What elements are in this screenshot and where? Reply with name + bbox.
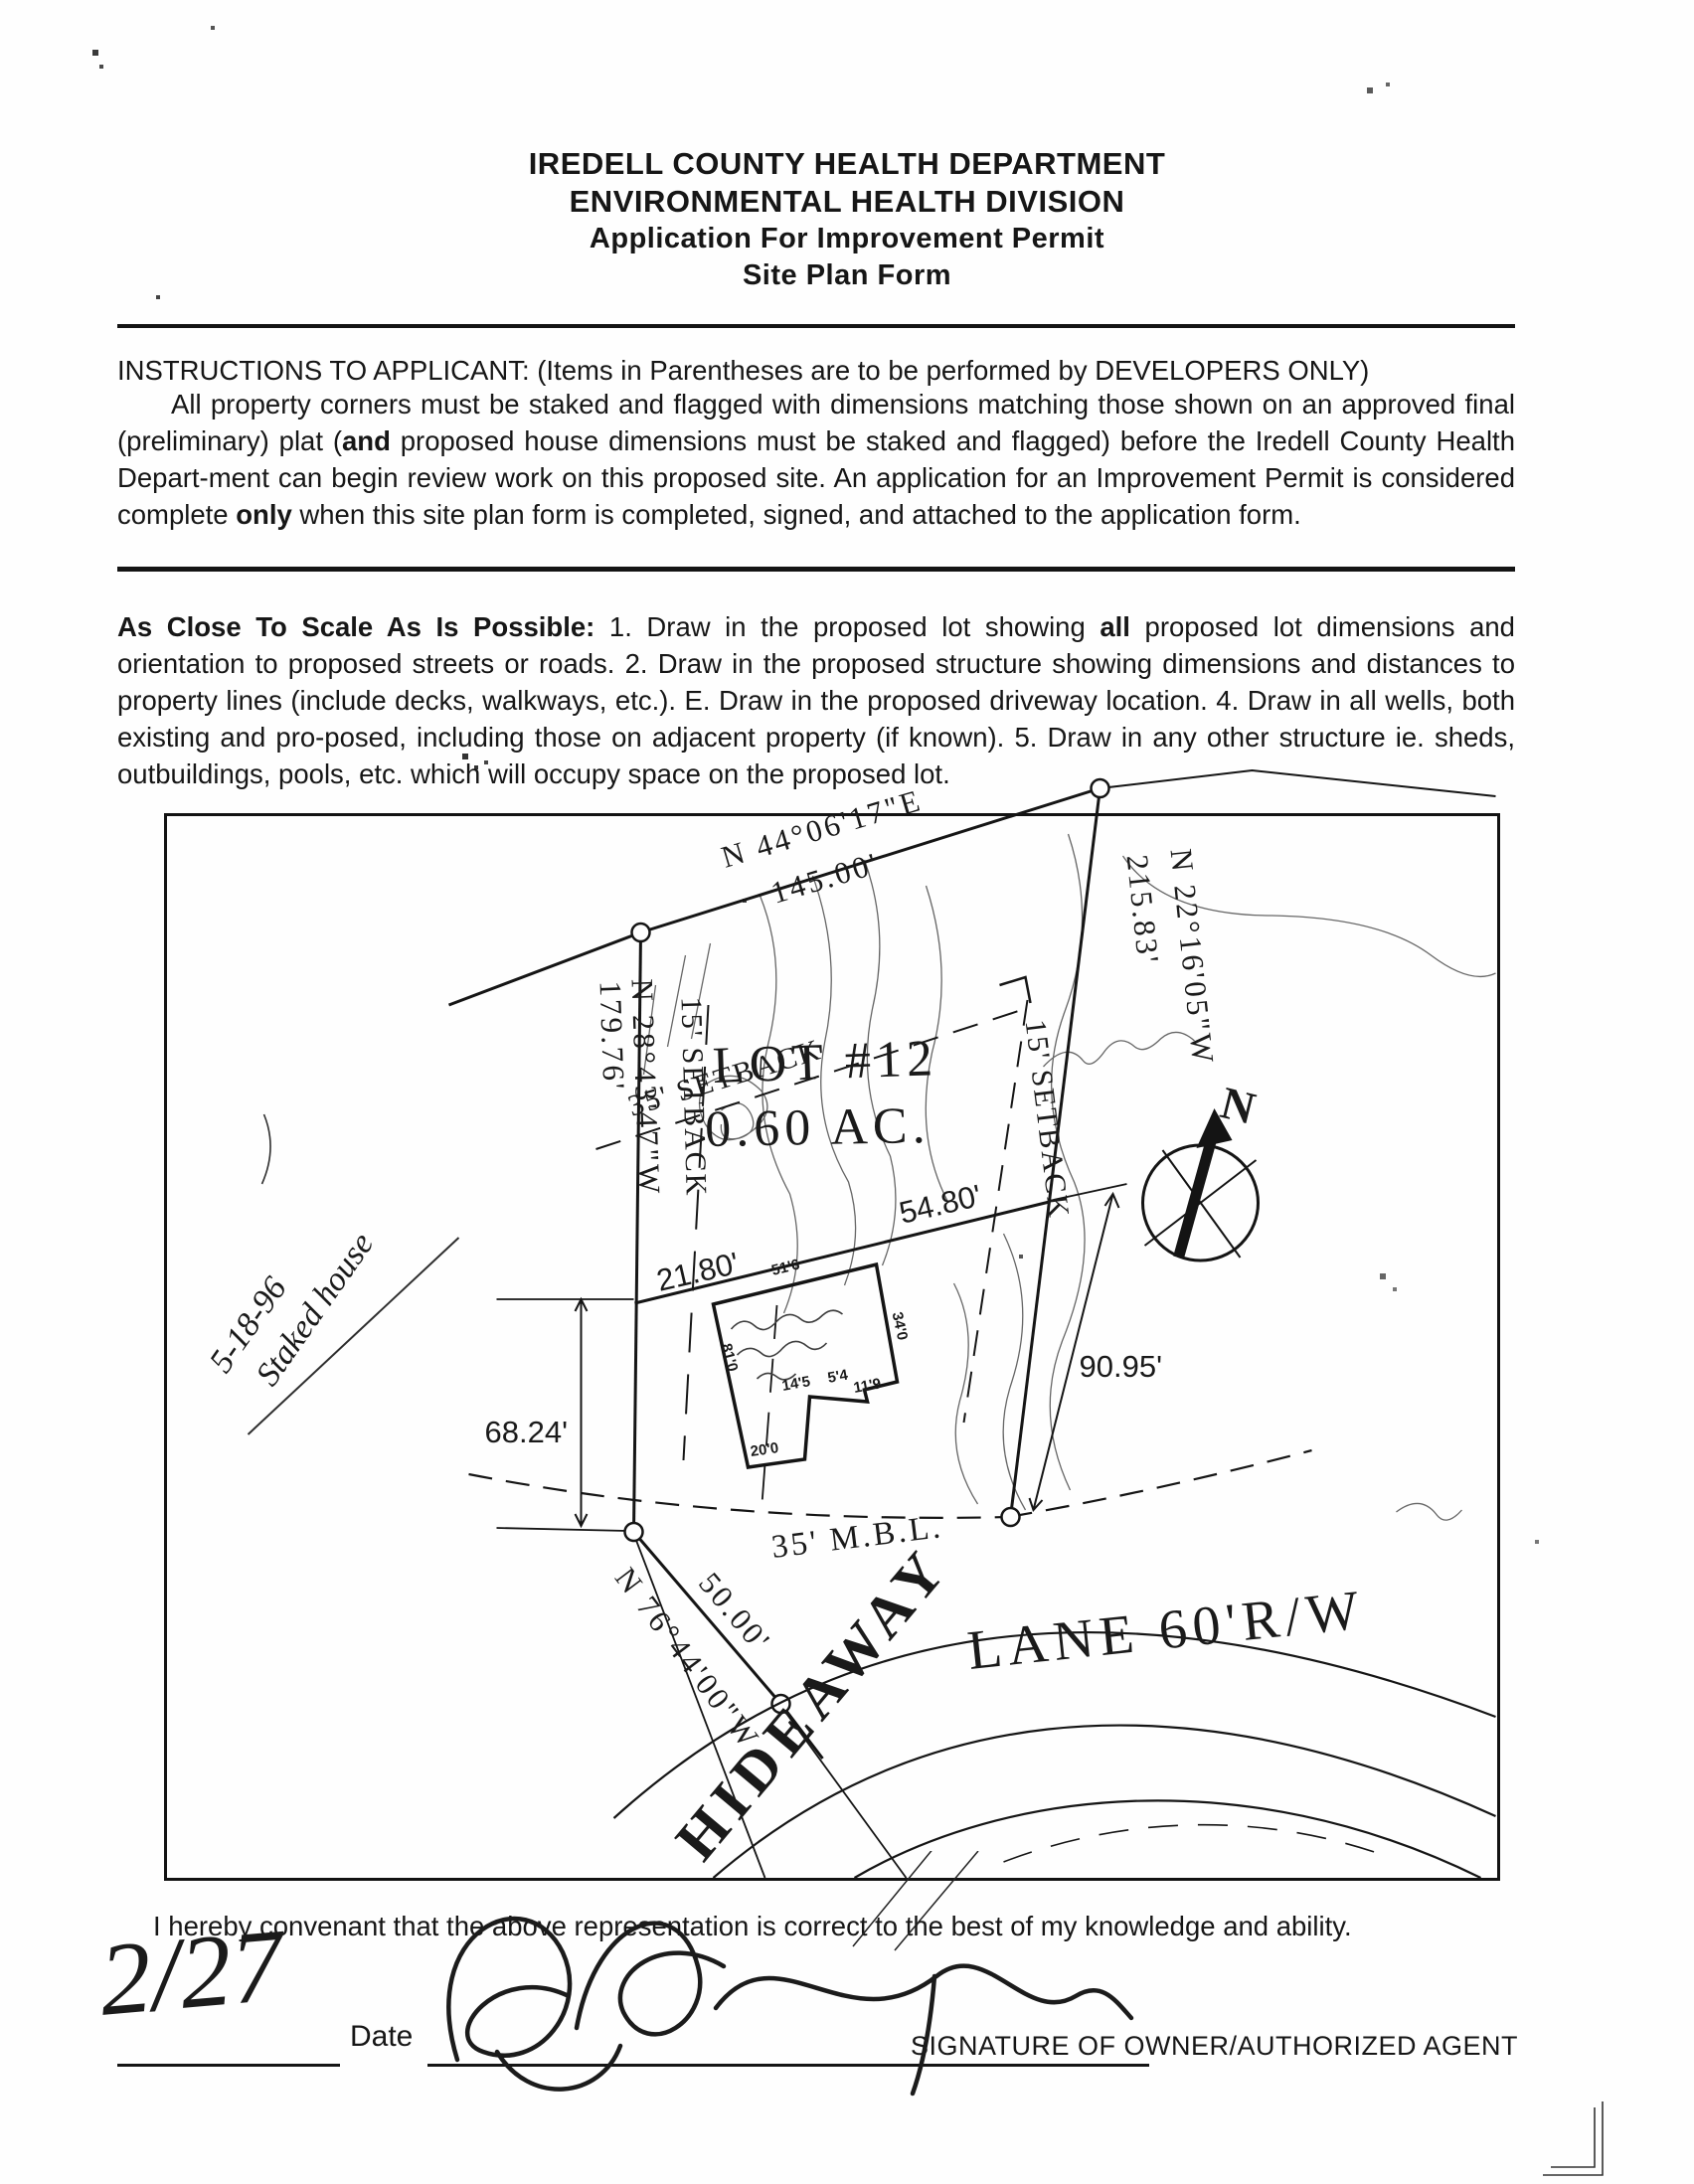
- instructions-body: All property corners must be staked and …: [117, 386, 1515, 533]
- site-plan-drawing-frame: N N 44°06'17"E 145.00' N 22°16'05"W: [164, 813, 1500, 1881]
- bearing-east: N 22°16'05"W: [1164, 847, 1222, 1068]
- bearing-road-length: 50.00': [692, 1566, 778, 1659]
- property-boundary-lines: [449, 770, 1496, 1878]
- scale-note: As Close To Scale As Is Possible: 1. Dra…: [117, 608, 1515, 792]
- scale-note-bold-all: all: [1100, 611, 1130, 642]
- header-form-title: Site Plan Form: [0, 257, 1694, 294]
- scale-note-lead: As Close To Scale As Is Possible:: [117, 611, 594, 642]
- site-plan-form-page: IREDELL COUNTY HEALTH DEPARTMENT ENVIRON…: [0, 0, 1694, 2184]
- house-dim-right: 34'0: [889, 1310, 912, 1342]
- instructions-bold-only: only: [236, 499, 292, 530]
- instructions-body-part3: when this site plan form is completed, s…: [292, 499, 1301, 530]
- house-dim-step-b: 5'4: [826, 1367, 850, 1387]
- lot-number-label: LOT #12: [712, 1030, 938, 1094]
- instructions-heading: INSTRUCTIONS TO APPLICANT: (Items in Par…: [117, 352, 1515, 389]
- house-dim-left: 81'0: [718, 1342, 742, 1374]
- house-dim-wing: 20'0: [750, 1439, 780, 1460]
- house-dim-top: 51'6: [769, 1256, 801, 1278]
- header-department: IREDELL COUNTY HEALTH DEPARTMENT: [0, 145, 1694, 183]
- bearing-east-length: 215.83': [1120, 853, 1166, 967]
- house-dim-step-a: 14'5: [780, 1373, 811, 1395]
- divider-top: [117, 324, 1515, 328]
- form-header: IREDELL COUNTY HEALTH DEPARTMENT ENVIRON…: [0, 145, 1694, 294]
- handwritten-margin-note: 5-18-96 Staked house: [203, 1114, 459, 1434]
- svg-text:5-18-96 Staked house: 5-18-96 Staked house: [203, 1200, 382, 1406]
- bearing-west-length: 179.76': [593, 980, 632, 1092]
- house-dim-step-c: 11'9: [852, 1375, 882, 1397]
- scale-note-part1: 1. Draw in the proposed lot showing: [594, 611, 1100, 642]
- header-division: ENVIRONMENTAL HEALTH DIVISION: [0, 183, 1694, 221]
- setback-15-left-label: 15' SETBACK: [675, 996, 713, 1197]
- date-blank-line: [117, 2064, 340, 2067]
- photocopy-specks: [0, 0, 2, 2]
- site-plan-drawing: N N 44°06'17"E 145.00' N 22°16'05"W: [167, 816, 1497, 1878]
- dim-left: 68.24': [485, 1415, 569, 1449]
- header-application-title: Application For Improvement Permit: [0, 221, 1694, 257]
- compass-north-label: N: [1216, 1077, 1261, 1134]
- dim-front-west: 21.80': [653, 1246, 742, 1298]
- dimension-lines: [497, 1184, 1127, 1531]
- dim-front-east: 54.80': [896, 1178, 984, 1231]
- divider-middle: [117, 567, 1515, 572]
- handwritten-signature: [378, 1851, 1193, 2129]
- corner-pen-mark: [1539, 2098, 1618, 2182]
- north-arrow-compass: N: [1143, 1077, 1261, 1260]
- dim-right: 90.95': [1080, 1349, 1163, 1384]
- handwritten-date: 2/27: [94, 1906, 288, 2040]
- lot-area-label: 0.60 AC.: [705, 1097, 931, 1158]
- road-label-lane-rw: LANE 60'R/W: [964, 1579, 1367, 1682]
- instructions-bold-and: and: [342, 425, 391, 456]
